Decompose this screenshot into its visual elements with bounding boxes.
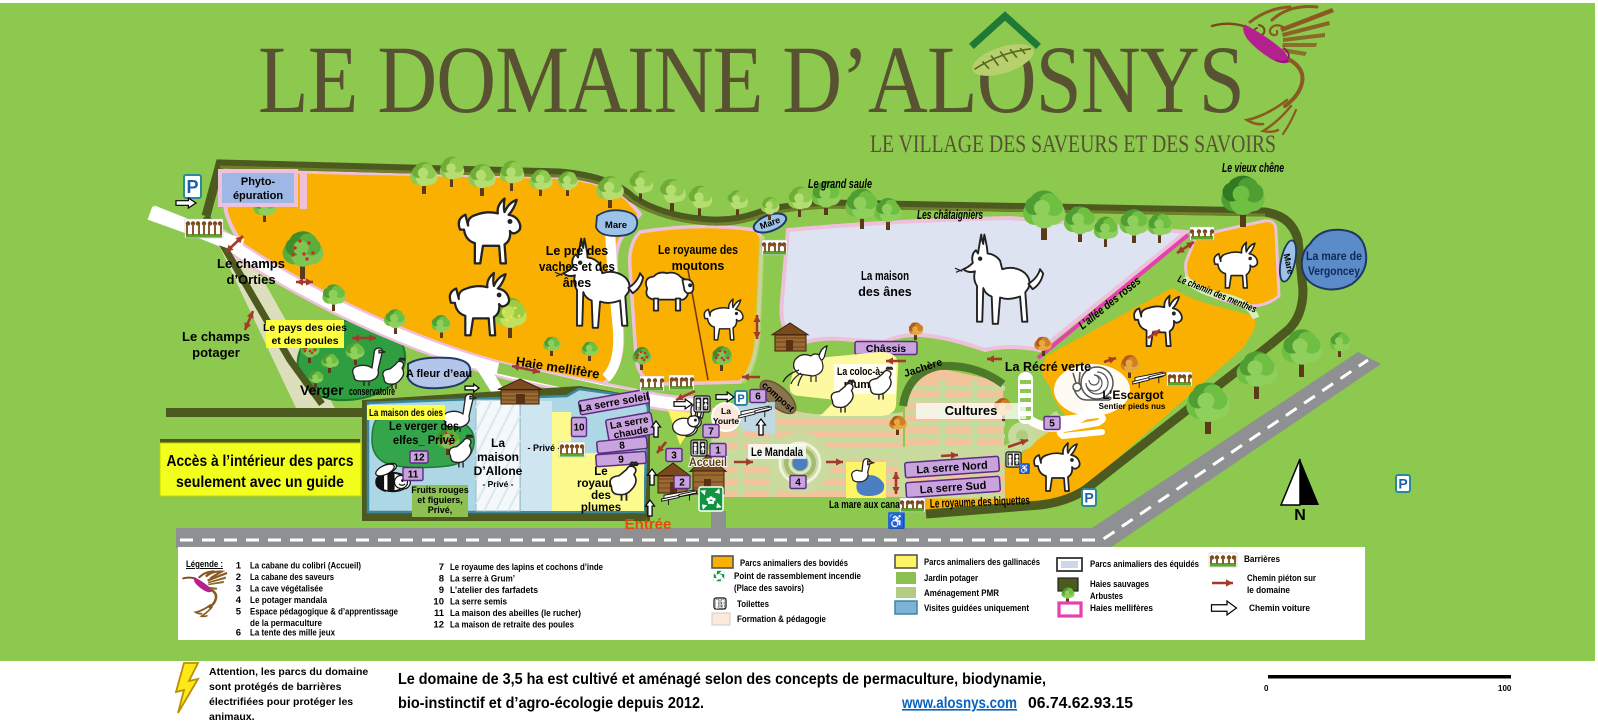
svg-text:10: 10 xyxy=(573,423,585,434)
svg-text:Le: Le xyxy=(594,466,607,478)
svg-text:Aménagement PMR: Aménagement PMR xyxy=(924,588,999,598)
svg-text:- Privé -: - Privé - xyxy=(527,443,560,453)
svg-text:Le grand saule: Le grand saule xyxy=(808,177,872,191)
svg-text:Le champs: Le champs xyxy=(217,256,285,271)
svg-text:La maison des abeilles (le ruc: La maison des abeilles (le rucher) xyxy=(450,608,581,619)
svg-text:100: 100 xyxy=(1498,684,1512,693)
svg-text:vaches et des: vaches et des xyxy=(539,260,615,274)
svg-text:Accueil: Accueil xyxy=(689,457,727,469)
svg-text:Point de rassemblement incendi: Point de rassemblement incendie xyxy=(734,571,861,581)
svg-text:06.74.62.93.15: 06.74.62.93.15 xyxy=(1028,695,1133,712)
svg-text:des ânes: des ânes xyxy=(858,285,912,299)
svg-text:La maison: La maison xyxy=(861,269,909,283)
svg-text:La maison des oies: La maison des oies xyxy=(369,407,443,419)
svg-text:Le domaine de 3,5 ha est culti: Le domaine de 3,5 ha est cultivé et amén… xyxy=(398,671,1046,688)
svg-text:P: P xyxy=(1398,475,1407,491)
svg-text:conservatoire: conservatoire xyxy=(349,386,395,398)
svg-text:♿: ♿ xyxy=(1019,463,1030,474)
svg-text:Entrée: Entrée xyxy=(625,516,672,533)
svg-text:La tente des mille jeux: La tente des mille jeux xyxy=(250,628,336,639)
svg-text:Le vieux chêne: Le vieux chêne xyxy=(1222,161,1284,175)
svg-text:seulement avec un guide: seulement avec un guide xyxy=(176,474,344,491)
svg-text:2: 2 xyxy=(236,572,241,583)
svg-text:elfes_ Privé: elfes_ Privé xyxy=(393,433,455,447)
svg-text:Chemin piéton sur: Chemin piéton sur xyxy=(1247,573,1316,583)
svg-text:www.alosnys.com: www.alosnys.com xyxy=(901,695,1017,712)
svg-text:LE DOMAINE D’ALOSNYS: LE DOMAINE D’ALOSNYS xyxy=(258,26,1244,133)
svg-text:électrifiées pour protéger les: électrifiées pour protéger les xyxy=(209,696,353,708)
svg-text:Le champs: Le champs xyxy=(182,329,250,344)
svg-text:bio-instinctif et d’agro-écolo: bio-instinctif et d’agro-écologie depuis… xyxy=(398,695,704,712)
svg-text:maison: maison xyxy=(477,450,519,464)
svg-text:4: 4 xyxy=(236,595,242,606)
svg-text:Le royaume des lapins et cocho: Le royaume des lapins et cochons d’inde xyxy=(450,562,603,573)
svg-text:(Place des savoirs): (Place des savoirs) xyxy=(734,583,804,593)
svg-text:12: 12 xyxy=(413,453,425,464)
svg-text:Le pays des oies: Le pays des oies xyxy=(263,322,347,334)
svg-text:Fruits rouges: Fruits rouges xyxy=(411,485,469,495)
svg-text:N: N xyxy=(1294,507,1306,524)
svg-text:LE VILLAGE DES SAVEURS ET DES: LE VILLAGE DES SAVEURS ET DES SAVOIRS xyxy=(870,131,1276,158)
svg-text:Légende :: Légende : xyxy=(186,559,223,570)
svg-text:10: 10 xyxy=(433,597,444,608)
svg-text:Les châtaigniers: Les châtaigniers xyxy=(917,208,983,222)
svg-text:Haies sauvages: Haies sauvages xyxy=(1090,579,1149,589)
svg-text:La coloc-à-: La coloc-à- xyxy=(837,366,883,378)
svg-text:P: P xyxy=(186,177,198,197)
svg-text:ânes: ânes xyxy=(563,276,592,290)
svg-text:Le pré des: Le pré des xyxy=(546,244,609,258)
svg-text:potager: potager xyxy=(192,345,240,360)
svg-text:A fleur d’eau: A fleur d’eau xyxy=(406,368,472,380)
svg-text:La: La xyxy=(721,406,731,416)
svg-text:La: La xyxy=(491,436,505,450)
svg-text:Haies mellifères: Haies mellifères xyxy=(1090,603,1153,613)
svg-text:P: P xyxy=(1084,489,1093,505)
svg-text:5: 5 xyxy=(1049,419,1055,430)
svg-text:7: 7 xyxy=(708,427,714,438)
svg-text:3: 3 xyxy=(236,584,241,595)
svg-text:Cultures: Cultures xyxy=(945,403,998,418)
svg-text:9: 9 xyxy=(439,585,444,596)
svg-text:La cabane du colibri (Accueil): La cabane du colibri (Accueil) xyxy=(250,561,361,572)
svg-text:La maison de retraite des poul: La maison de retraite des poules xyxy=(450,620,574,631)
svg-text:Privé,: Privé, xyxy=(428,505,453,515)
svg-text:La Récré verte: La Récré verte xyxy=(1005,360,1091,374)
svg-text:Le potager mandala: Le potager mandala xyxy=(250,595,328,606)
svg-text:7: 7 xyxy=(439,562,444,573)
svg-text:Toilettes: Toilettes xyxy=(737,599,769,609)
svg-text:Chemin voiture: Chemin voiture xyxy=(1249,603,1310,613)
svg-text:Le royaume des: Le royaume des xyxy=(658,243,738,257)
svg-text:Jardin potager: Jardin potager xyxy=(924,573,978,583)
svg-text:Visites guidées uniquement: Visites guidées uniquement xyxy=(924,603,1029,613)
svg-text:11: 11 xyxy=(434,608,445,619)
svg-text:La serre à Grum’: La serre à Grum’ xyxy=(450,574,515,585)
svg-text:animaux.: animaux. xyxy=(209,711,255,723)
svg-text:plumes: plumes xyxy=(581,502,621,514)
svg-text:Sentier pieds nus: Sentier pieds nus xyxy=(1099,402,1166,411)
svg-text:D’Allone: D’Allone xyxy=(474,464,523,478)
svg-text:Verger: Verger xyxy=(300,382,344,398)
svg-text:des: des xyxy=(591,490,611,502)
svg-text:Mare: Mare xyxy=(605,220,627,231)
svg-text:Formation & pédagogie: Formation & pédagogie xyxy=(737,614,826,624)
svg-text:La serre semis: La serre semis xyxy=(450,597,507,608)
svg-text:Le verger des: Le verger des xyxy=(389,419,459,433)
svg-text:11: 11 xyxy=(408,470,419,481)
svg-text:Phyto-: Phyto- xyxy=(241,176,276,188)
svg-text:Parcs animaliers des gallinacé: Parcs animaliers des gallinacés xyxy=(924,557,1040,567)
svg-text:Parcs animaliers des équidés: Parcs animaliers des équidés xyxy=(1090,559,1199,569)
svg-text:Accès à l’intérieur des parcs: Accès à l’intérieur des parcs xyxy=(167,453,354,470)
svg-text:- Privé -: - Privé - xyxy=(482,479,513,489)
svg-text:8: 8 xyxy=(439,574,444,585)
svg-text:1: 1 xyxy=(236,561,242,572)
svg-text:3: 3 xyxy=(671,451,677,462)
svg-text:Arbustes: Arbustes xyxy=(1090,591,1123,601)
svg-text:Espace pédagogique & d’apprent: Espace pédagogique & d’apprentissage xyxy=(250,607,398,618)
svg-text:Barrières: Barrières xyxy=(1244,554,1280,564)
svg-text:4: 4 xyxy=(795,478,801,489)
svg-text:sont protégés de barrières: sont protégés de barrières xyxy=(209,681,342,693)
svg-text:12: 12 xyxy=(433,620,444,631)
svg-text:6: 6 xyxy=(236,628,241,639)
svg-text:Le Mandala: Le Mandala xyxy=(751,447,803,459)
svg-text:La cabane des saveurs: La cabane des saveurs xyxy=(250,572,334,583)
svg-text:P: P xyxy=(737,393,744,405)
svg-text:6: 6 xyxy=(755,392,761,403)
svg-text:0: 0 xyxy=(1264,684,1269,693)
svg-text:L’atelier des farfadets: L’atelier des farfadets xyxy=(450,585,538,596)
svg-text:2: 2 xyxy=(679,478,685,489)
svg-text:et des poules: et des poules xyxy=(271,335,338,347)
svg-text:5: 5 xyxy=(236,607,242,618)
svg-text:épuration: épuration xyxy=(233,190,283,202)
svg-text:Parcs animaliers des bovidés: Parcs animaliers des bovidés xyxy=(740,558,848,568)
svg-text:Attention, les parcs du domain: Attention, les parcs du domaine xyxy=(209,666,368,678)
svg-text:La mare de: La mare de xyxy=(1306,251,1362,263)
svg-text:Vergoncey: Vergoncey xyxy=(1308,266,1361,278)
svg-text:♿: ♿ xyxy=(888,513,905,530)
svg-text:L’Escargot: L’Escargot xyxy=(1102,388,1163,402)
svg-text:d’Orties: d’Orties xyxy=(226,272,275,287)
svg-text:le domaine: le domaine xyxy=(1247,585,1290,595)
svg-text:La cave végétalisée: La cave végétalisée xyxy=(250,584,323,595)
svg-text:et figuiers,: et figuiers, xyxy=(417,495,463,505)
svg-text:moutons: moutons xyxy=(672,259,725,273)
svg-text:1: 1 xyxy=(715,446,721,457)
